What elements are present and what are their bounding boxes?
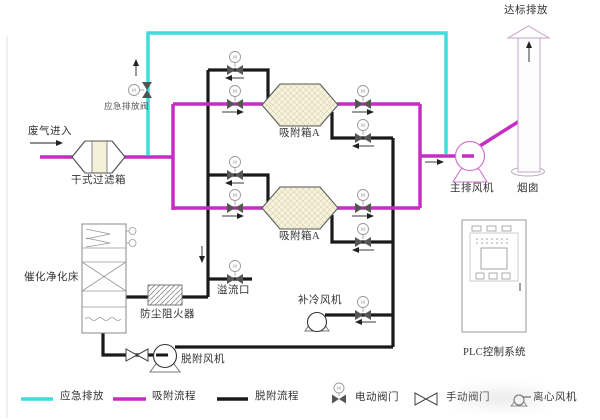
label-dust-flame-arrester: 防尘阻火器 [140, 310, 195, 321]
svg-text:M: M [361, 300, 365, 306]
svg-text:M: M [233, 89, 237, 95]
dry-filter-box-shape [72, 141, 125, 173]
pipe-fan-discharge [475, 120, 521, 149]
legend-label-desorption: 脱附流程 [255, 392, 299, 403]
manual-valve [126, 349, 148, 361]
desorption-fan-shape [150, 345, 180, 373]
sensor-icon [129, 228, 136, 235]
label-emergency-vent-valve: 应急排放阀 [104, 102, 149, 111]
legend-manual-valve-icon [415, 393, 437, 405]
legend-centrifugal-fan-icon [511, 395, 531, 406]
svg-text:M: M [361, 227, 365, 233]
label-main-exhaust-fan: 主排风机 [450, 184, 494, 195]
legend-label-emergency: 应急排放 [60, 392, 104, 403]
svg-text:M: M [361, 89, 365, 95]
svg-text:M: M [361, 123, 365, 129]
legend-motor-valve-icon: M [332, 383, 346, 404]
svg-text:M: M [132, 88, 136, 94]
legend-label-centrifugal-fan: 离心风机 [533, 393, 577, 404]
label-plc-system: PLC控制系统 [463, 348, 526, 359]
sensor-icon [129, 240, 136, 247]
label-makeup-cooling-fan: 补冷风机 [298, 296, 342, 307]
legend-label-motor-valve: 电动阀门 [355, 393, 399, 404]
catalytic-bed-shape [82, 224, 136, 333]
dust-flame-arrester-shape [148, 285, 182, 305]
legend-label-adsorption: 吸附流程 [152, 392, 196, 403]
svg-text:M: M [233, 160, 237, 166]
chimney-cap-icon [508, 26, 549, 38]
svg-text:M: M [233, 55, 237, 61]
label-overflow-port: 溢流口 [217, 286, 250, 297]
svg-text:M: M [233, 264, 237, 270]
main-exhaust-fan-shape [453, 142, 487, 183]
svg-text:M: M [233, 193, 237, 199]
plc-cabinet-shape [462, 220, 526, 332]
label-dry-filter-box: 干式过滤箱 [71, 176, 126, 187]
svg-text:M: M [361, 193, 365, 199]
label-adsorption-box-2: 吸附箱A [279, 232, 320, 243]
label-chimney: 烟囱 [517, 184, 539, 195]
process-flow-diagram: M M M M M M M M M M [0, 0, 600, 420]
adsorption-box-2-shape [262, 187, 338, 229]
label-desorption-fan: 脱附风机 [181, 355, 225, 366]
chimney-shape [508, 26, 549, 176]
legend-label-manual-valve: 手动阀门 [446, 393, 490, 404]
label-compliant-discharge: 达标排放 [504, 6, 548, 17]
svg-text:M: M [337, 386, 341, 392]
adsorption-box-1-shape [262, 84, 338, 126]
label-waste-gas-in: 废气进入 [28, 127, 72, 138]
label-catalytic-bed: 催化净化床 [24, 273, 79, 284]
label-adsorption-box-1: 吸附箱A [279, 129, 320, 140]
